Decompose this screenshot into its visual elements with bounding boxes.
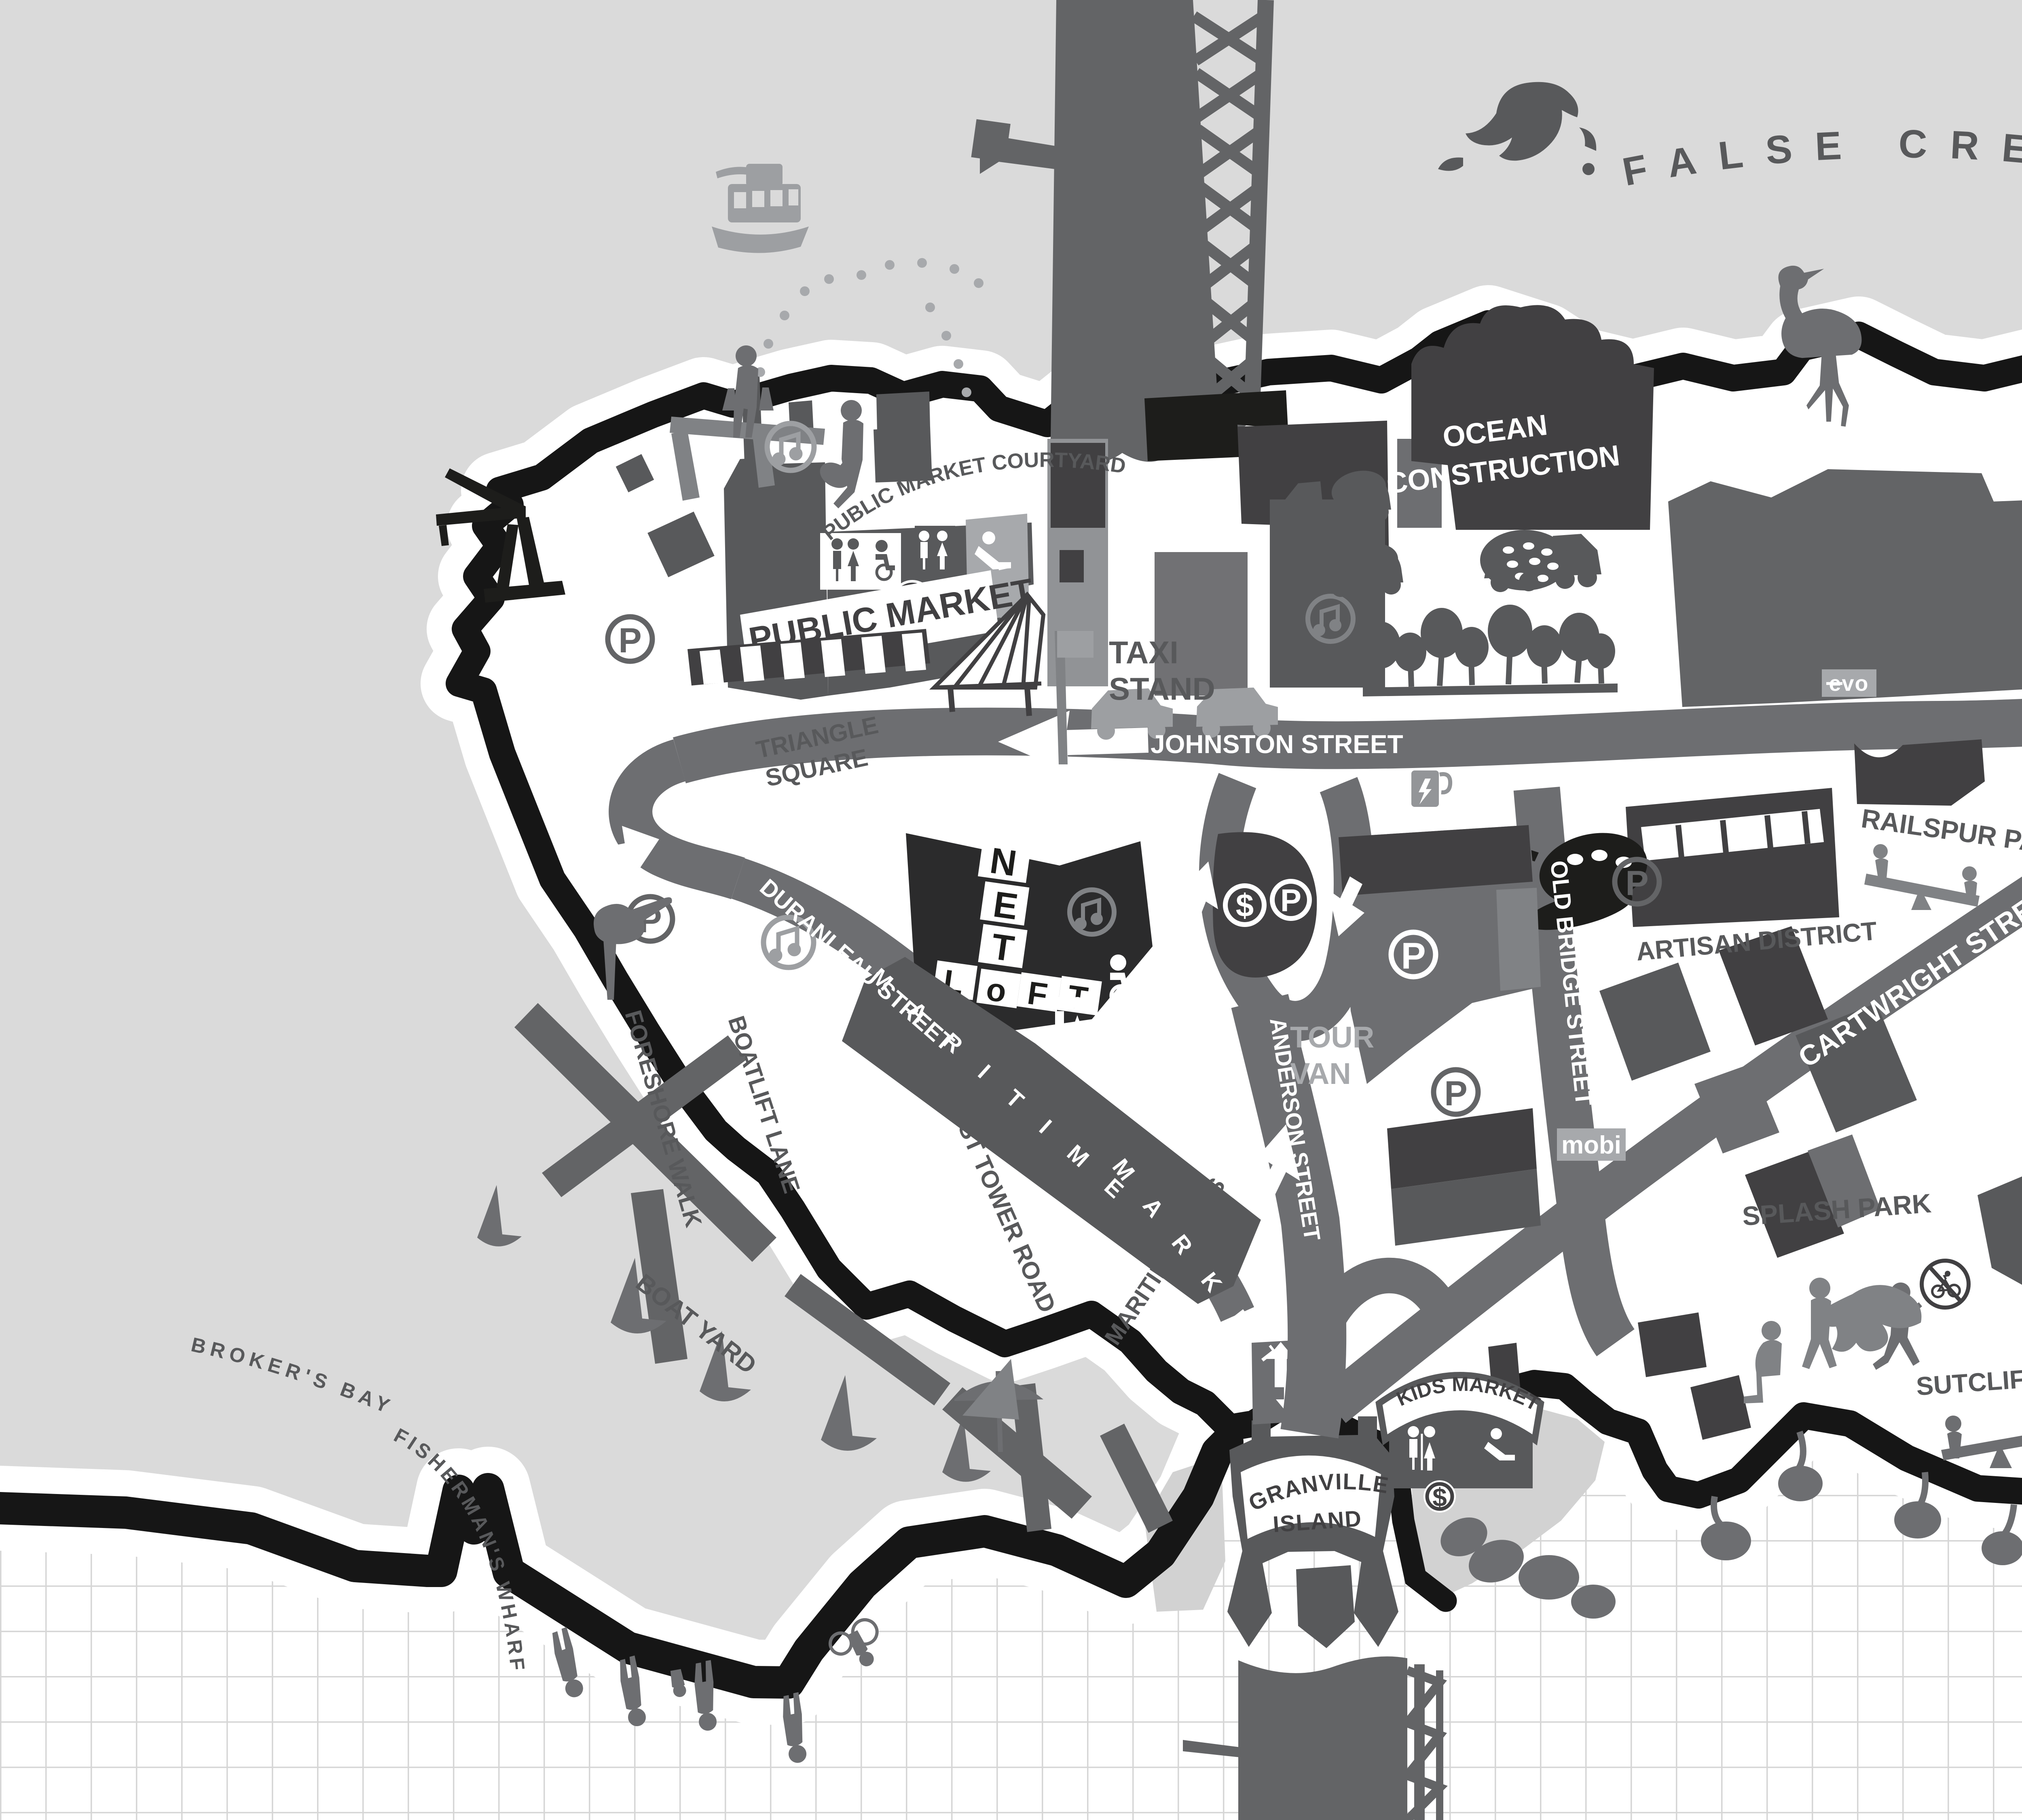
- svg-text:TAXI: TAXI: [1109, 635, 1178, 670]
- svg-text:P: P: [1444, 1074, 1467, 1113]
- svg-text:mobi: mobi: [1561, 1131, 1621, 1159]
- svg-text:P: P: [1905, 561, 1928, 599]
- svg-text:P: P: [1625, 864, 1648, 903]
- svg-text:P: P: [1401, 935, 1426, 977]
- svg-text:VAN: VAN: [1290, 1057, 1351, 1090]
- svg-text:TOUR: TOUR: [1290, 1020, 1374, 1054]
- svg-text:N: N: [988, 840, 1019, 884]
- svg-text:JOHNSTON STREET: JOHNSTON STREET: [1151, 730, 1403, 759]
- svg-text:$: $: [1236, 887, 1254, 923]
- svg-text:STAND: STAND: [1109, 671, 1215, 707]
- svg-text:P: P: [618, 621, 641, 660]
- svg-text:$: $: [1432, 1483, 1447, 1512]
- svg-text:P: P: [1280, 882, 1301, 918]
